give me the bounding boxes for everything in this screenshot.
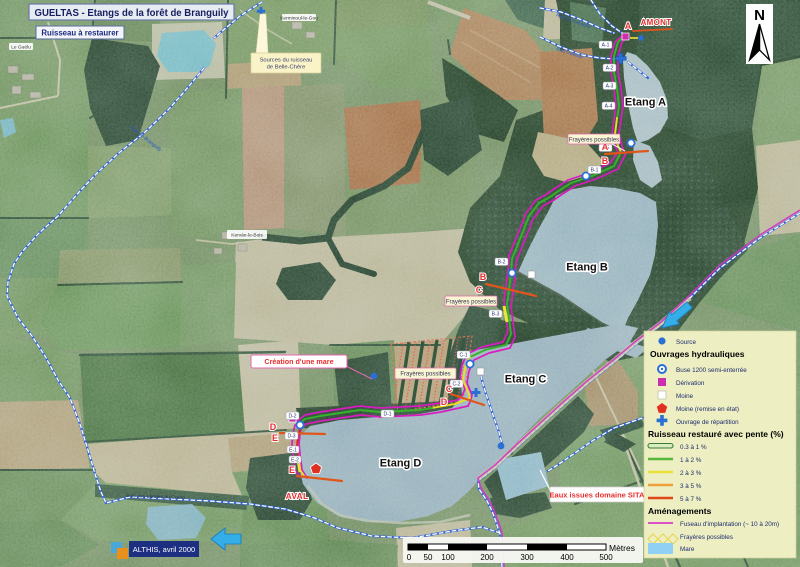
- svg-text:D-1: D-1: [383, 412, 391, 418]
- svg-text:Etang D: Etang D: [380, 458, 422, 470]
- svg-text:Dérivation: Dérivation: [676, 380, 705, 387]
- svg-text:Ruisseau à restaurer: Ruisseau à restaurer: [41, 29, 118, 38]
- svg-text:0: 0: [407, 553, 412, 562]
- svg-text:100: 100: [441, 553, 455, 562]
- svg-text:Aménagements: Aménagements: [648, 506, 712, 516]
- svg-text:500: 500: [599, 553, 613, 562]
- svg-text:200: 200: [480, 553, 494, 562]
- svg-text:Mètres: Mètres: [609, 543, 635, 553]
- svg-text:E: E: [289, 465, 295, 475]
- svg-text:Frayères possibles: Frayères possibles: [446, 300, 496, 306]
- svg-text:E-1: E-1: [289, 448, 297, 454]
- svg-text:Le Guélu: Le Guélu: [11, 44, 31, 50]
- svg-text:Ouvrage de répartition: Ouvrage de répartition: [676, 419, 739, 426]
- svg-text:Moine (remise en état): Moine (remise en état): [676, 406, 739, 413]
- svg-text:A-1: A-1: [602, 43, 610, 49]
- svg-text:B-2: B-2: [498, 260, 506, 266]
- svg-text:Sources du ruisseau: Sources du ruisseau: [260, 58, 313, 64]
- svg-text:Frayères possibles: Frayères possibles: [400, 372, 450, 378]
- svg-text:GUELTAS - Etangs de la forêt d: GUELTAS - Etangs de la forêt de Branguil…: [35, 8, 229, 19]
- svg-text:ALTHIS, avril 2000: ALTHIS, avril 2000: [133, 545, 195, 554]
- svg-text:2 à 3 %: 2 à 3 %: [680, 470, 702, 477]
- svg-text:Ouvrages hydrauliques: Ouvrages hydrauliques: [650, 349, 745, 359]
- svg-text:Etang B: Etang B: [566, 262, 608, 274]
- svg-text:C: C: [476, 285, 483, 295]
- svg-text:3 à 5 %: 3 à 5 %: [680, 483, 702, 490]
- svg-text:Fuseau d'implantation (~ 10 à: Fuseau d'implantation (~ 10 à 20m): [680, 521, 779, 528]
- svg-text:A-3: A-3: [606, 84, 614, 90]
- svg-text:Mare: Mare: [680, 546, 695, 553]
- svg-text:B-1: B-1: [591, 168, 599, 174]
- svg-text:A-4: A-4: [605, 104, 613, 110]
- svg-text:D: D: [441, 397, 448, 407]
- svg-text:C: C: [446, 384, 453, 394]
- svg-text:C-2: C-2: [452, 382, 460, 388]
- svg-text:D-2: D-2: [288, 414, 296, 420]
- svg-text:B: B: [602, 156, 609, 166]
- svg-text:0.3 à 1 %: 0.3 à 1 %: [680, 444, 707, 451]
- svg-text:Frayères possibles: Frayères possibles: [680, 534, 733, 541]
- svg-text:AVAL: AVAL: [286, 491, 309, 501]
- svg-text:E-2: E-2: [291, 458, 299, 464]
- svg-text:E: E: [272, 433, 278, 443]
- svg-text:Etang A: Etang A: [625, 97, 666, 109]
- svg-text:Etang C: Etang C: [505, 374, 547, 386]
- svg-text:400: 400: [560, 553, 574, 562]
- svg-text:A: A: [625, 21, 632, 31]
- svg-text:AMONT: AMONT: [641, 18, 672, 27]
- svg-text:50: 50: [424, 553, 433, 562]
- svg-text:A-2: A-2: [606, 66, 614, 72]
- svg-text:Buse 1200 semi-enterrée: Buse 1200 semi-enterrée: [676, 367, 747, 374]
- svg-text:D: D: [270, 422, 277, 432]
- svg-text:Kerminoul-le-Gou: Kerminoul-le-Gou: [280, 15, 318, 21]
- svg-text:Kerván-le-Bois: Kerván-le-Bois: [231, 232, 263, 238]
- svg-text:5 à 7 %: 5 à 7 %: [680, 496, 702, 503]
- svg-text:C-1: C-1: [459, 353, 467, 359]
- svg-text:Eaux issues domaine SITA: Eaux issues domaine SITA: [550, 491, 645, 500]
- svg-text:de Belle-Chère: de Belle-Chère: [267, 65, 306, 71]
- svg-text:B: B: [480, 272, 487, 282]
- svg-text:B-3: B-3: [492, 312, 500, 318]
- svg-text:Moine: Moine: [676, 393, 694, 400]
- svg-text:Ruisseau restauré avec pente (: Ruisseau restauré avec pente (%): [648, 429, 784, 439]
- svg-text:Frayères possibles: Frayères possibles: [569, 138, 619, 144]
- svg-text:D-3: D-3: [287, 434, 295, 440]
- svg-text:300: 300: [520, 553, 534, 562]
- svg-text:Source: Source: [676, 339, 696, 346]
- svg-text:N: N: [754, 7, 765, 24]
- svg-text:1 à 2 %: 1 à 2 %: [680, 457, 702, 464]
- svg-text:Création d'une mare: Création d'une mare: [264, 357, 333, 366]
